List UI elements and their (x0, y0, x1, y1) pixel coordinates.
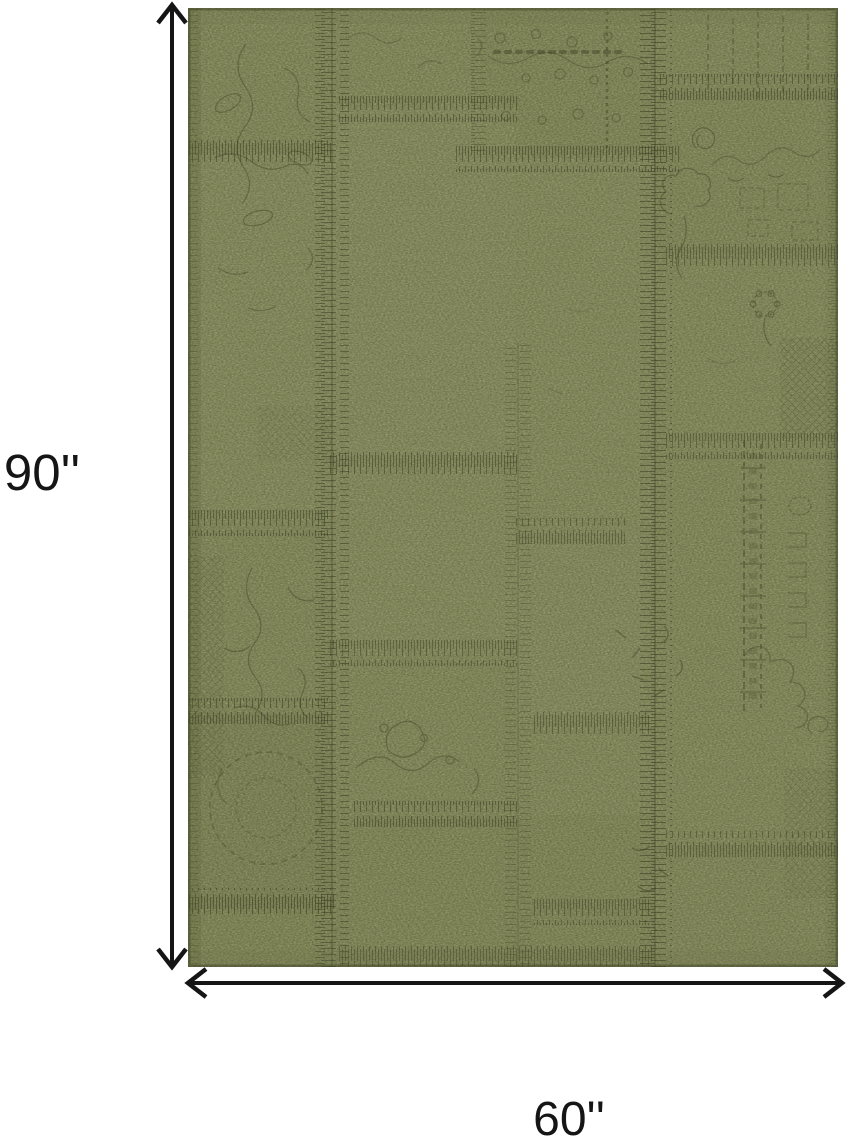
horizontal-dimension-arrow-icon (180, 962, 850, 1004)
rug-product-image (188, 8, 838, 967)
width-dimension-label: 60'' (529, 1096, 609, 1138)
height-dimension-label: 90'' (0, 447, 86, 498)
product-dimension-diagram: 90'' (0, 0, 850, 1138)
